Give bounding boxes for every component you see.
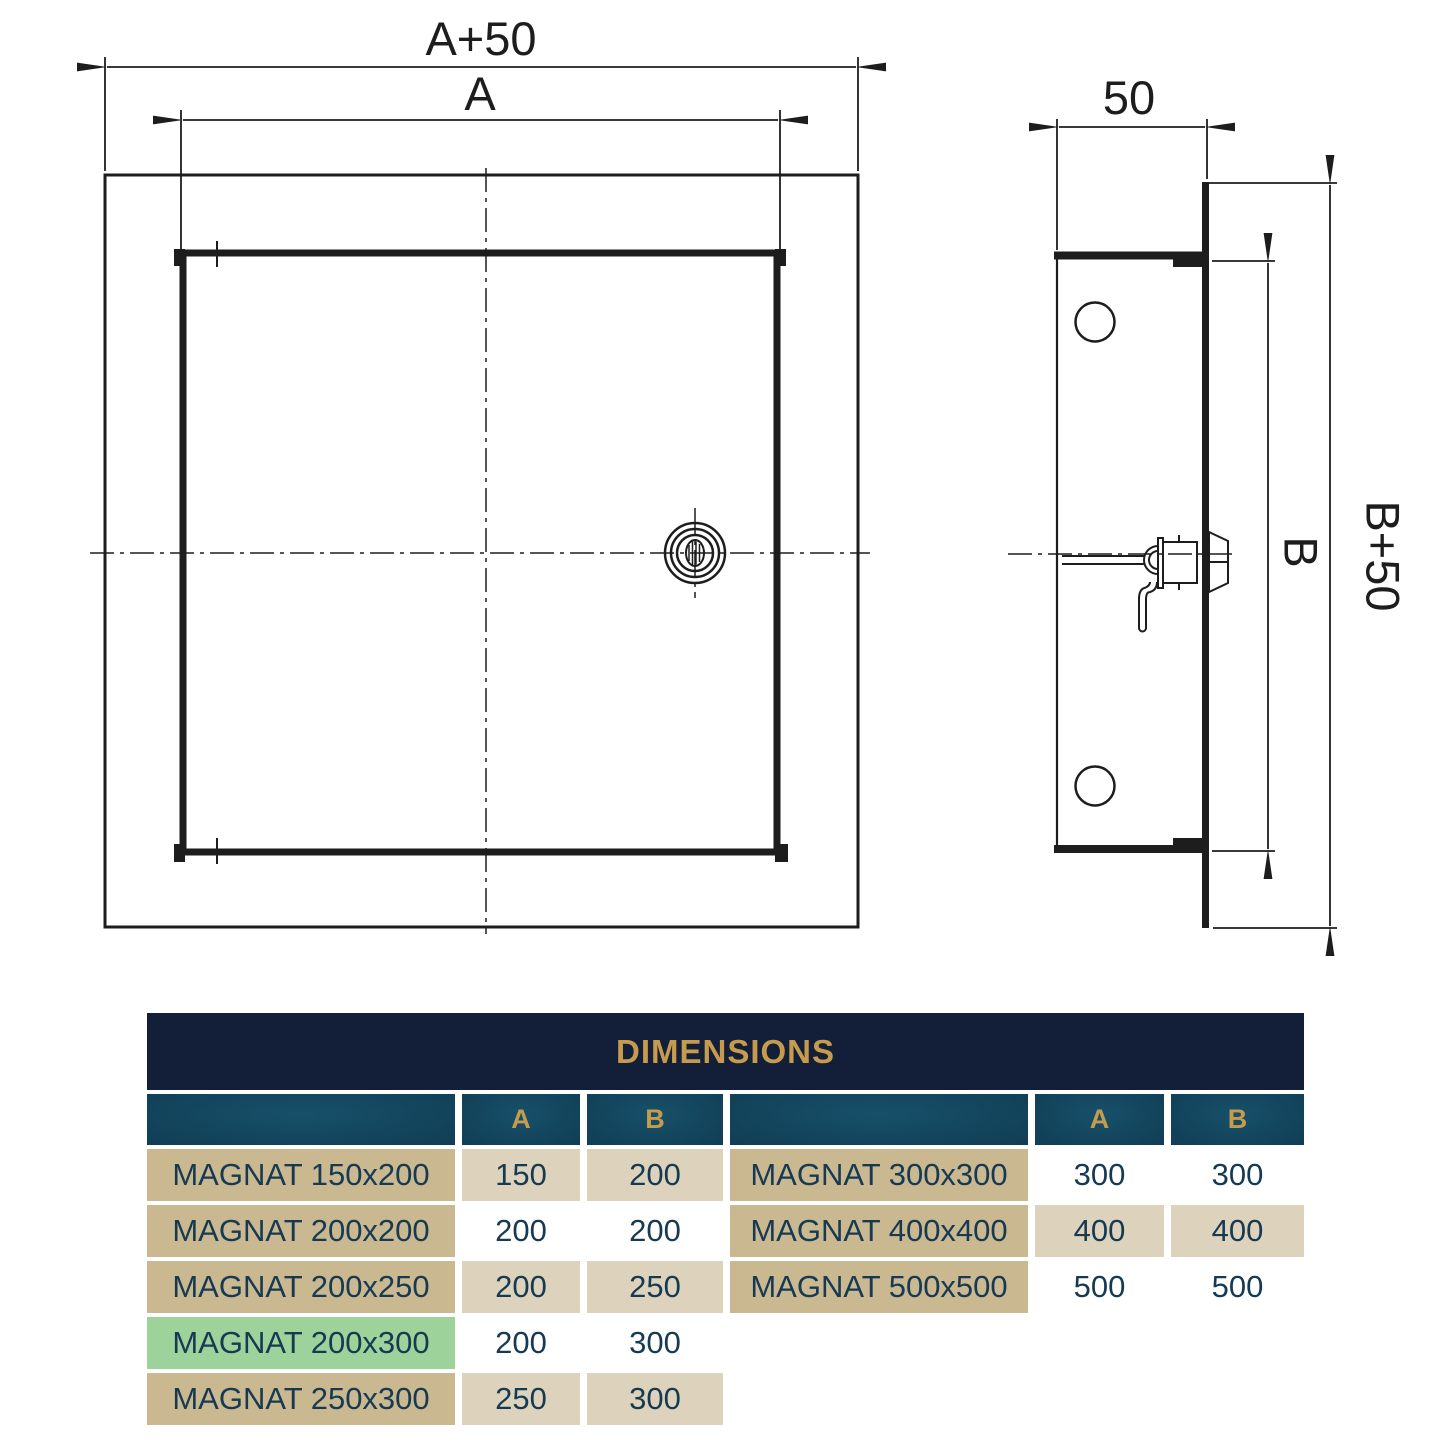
empty-cell: [1035, 1317, 1164, 1369]
label-b-plus-50: B+50: [1357, 500, 1410, 611]
value-a-cell: 200: [462, 1205, 580, 1257]
empty-cell: [730, 1373, 1028, 1425]
model-name-cell-highlighted: MAGNAT 200x300: [147, 1317, 455, 1369]
value-b-cell: 200: [587, 1205, 723, 1257]
label-50: 50: [1103, 71, 1155, 124]
dimension-b: [1212, 261, 1275, 851]
front-view: [90, 168, 870, 934]
table-title: DIMENSIONS: [147, 1013, 1304, 1090]
value-b-cell: 300: [1171, 1149, 1304, 1201]
front-outer-frame: [105, 175, 858, 927]
label-b: B: [1275, 536, 1328, 567]
empty-cell: [1171, 1317, 1304, 1369]
model-name-cell: MAGNAT 400x400: [730, 1205, 1028, 1257]
label-a: A: [464, 67, 496, 120]
value-a-cell: 200: [462, 1317, 580, 1369]
dimension-50: [1057, 119, 1207, 250]
empty-cell: [730, 1317, 1028, 1369]
value-a-cell: 400: [1035, 1205, 1164, 1257]
subheader-col-a-right: A: [1035, 1094, 1164, 1145]
subheader-col-b-left: B: [587, 1094, 723, 1145]
empty-cell: [1035, 1373, 1164, 1425]
technical-drawing: A+50 A: [0, 0, 1445, 1010]
side-hole-bottom: [1076, 767, 1115, 806]
subheader-blank-left: [147, 1094, 455, 1145]
value-b-cell: 250: [587, 1261, 723, 1313]
value-b-cell: 200: [587, 1149, 723, 1201]
model-name-cell: MAGNAT 150x200: [147, 1149, 455, 1201]
dimension-a: [181, 110, 780, 249]
empty-cell: [1171, 1373, 1304, 1425]
label-a-plus-50: A+50: [425, 12, 536, 65]
subheader-col-a-left: A: [462, 1094, 580, 1145]
value-a-cell: 150: [462, 1149, 580, 1201]
side-hole-top: [1076, 303, 1115, 342]
value-a-cell: 300: [1035, 1149, 1164, 1201]
value-b-cell: 400: [1171, 1205, 1304, 1257]
model-name-cell: MAGNAT 250x300: [147, 1373, 455, 1425]
model-name-cell: MAGNAT 200x250: [147, 1261, 455, 1313]
model-name-cell: MAGNAT 500x500: [730, 1261, 1028, 1313]
value-a-cell: 200: [462, 1261, 580, 1313]
value-a-cell: 500: [1035, 1261, 1164, 1313]
value-b-cell: 500: [1171, 1261, 1304, 1313]
model-name-cell: MAGNAT 300x300: [730, 1149, 1028, 1201]
value-b-cell: 300: [587, 1317, 723, 1369]
spec-sheet: A+50 A: [0, 0, 1445, 1445]
value-b-cell: 300: [587, 1373, 723, 1425]
front-centerlines: [90, 168, 870, 934]
subheader-blank-right: [730, 1094, 1028, 1145]
model-name-cell: MAGNAT 200x200: [147, 1205, 455, 1257]
subheader-col-b-right: B: [1171, 1094, 1304, 1145]
dimensions-table: DIMENSIONS A B A B MAGNAT 150x200 150 20…: [147, 1013, 1304, 1425]
side-view: [1008, 182, 1236, 928]
value-a-cell: 250: [462, 1373, 580, 1425]
